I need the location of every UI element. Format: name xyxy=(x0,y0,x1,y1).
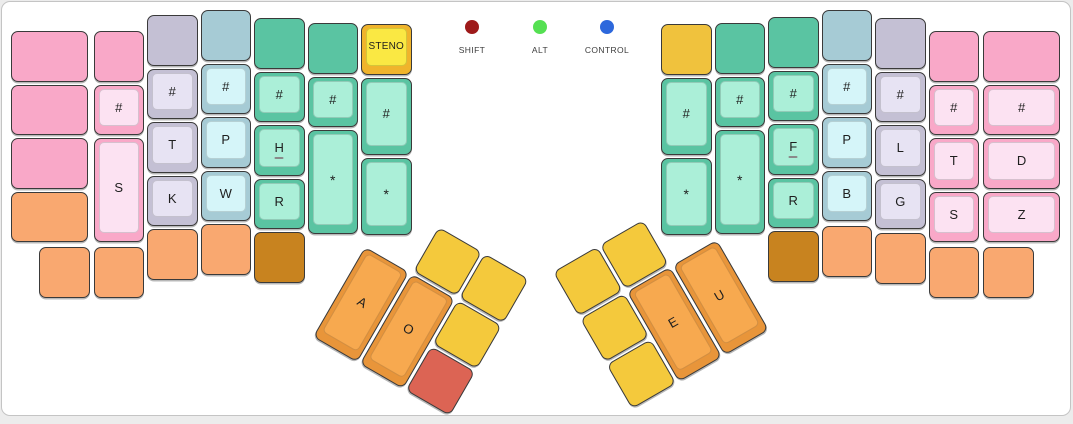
keycap-face: L xyxy=(880,129,921,167)
steno-P-right-key[interactable]: P xyxy=(822,117,873,168)
keycap-face: R xyxy=(259,183,300,221)
key-label: R xyxy=(789,194,798,207)
keycap-face: P xyxy=(827,121,868,159)
steno-number-key[interactable]: # xyxy=(94,85,145,136)
steno-T-right-key[interactable]: T xyxy=(929,138,980,189)
key-label: # xyxy=(329,93,336,106)
key-label: # xyxy=(683,107,690,120)
steno-S-left-key[interactable]: S xyxy=(94,138,145,242)
key-label: # xyxy=(169,85,176,98)
blank-key[interactable] xyxy=(768,17,819,68)
keycap-face: S xyxy=(934,196,975,234)
blank-key[interactable] xyxy=(94,31,145,82)
keycap-face: P xyxy=(206,121,247,159)
keycap-face: * xyxy=(313,134,354,225)
key-label: * xyxy=(737,173,742,187)
keycap-face: G xyxy=(880,183,921,221)
alt-indicator-label: ALT xyxy=(505,45,575,55)
blank-key[interactable] xyxy=(875,18,926,69)
steno-number-key[interactable]: # xyxy=(929,85,980,136)
blank-key[interactable] xyxy=(11,31,88,82)
steno-number-key[interactable]: # xyxy=(822,64,873,115)
blank-key[interactable] xyxy=(11,192,88,243)
blank-key[interactable] xyxy=(11,85,88,136)
keycap-face: # xyxy=(934,89,975,127)
steno-L-key[interactable]: L xyxy=(875,125,926,176)
keycap-face: T xyxy=(934,142,975,180)
key-label: # xyxy=(736,93,743,106)
keyboard-card: #S#TK#PW#HR#*STENO#*#*#*#FR#PB#LG#TS#DZA… xyxy=(1,1,1071,416)
blank-key[interactable] xyxy=(875,233,926,284)
blank-key[interactable] xyxy=(822,226,873,277)
steno-number-key[interactable]: # xyxy=(768,71,819,122)
key-label: # xyxy=(897,88,904,101)
key-label: # xyxy=(222,80,229,93)
key-label: S xyxy=(114,181,123,194)
steno-R-left-key[interactable]: R xyxy=(254,179,305,230)
blank-key[interactable] xyxy=(308,23,359,74)
key-label: U xyxy=(712,287,727,303)
keycap-face: # xyxy=(206,68,247,106)
keycap-face: # xyxy=(827,68,868,106)
key-label: K xyxy=(168,192,177,205)
blank-key[interactable] xyxy=(201,10,252,61)
steno-number-key[interactable]: # xyxy=(715,77,766,128)
shift-indicator: SHIFT xyxy=(437,20,507,55)
blank-key[interactable] xyxy=(929,31,980,82)
key-label: # xyxy=(950,101,957,114)
steno-Z-key[interactable]: Z xyxy=(983,192,1060,243)
keycap-face: * xyxy=(720,134,761,225)
key-label: # xyxy=(790,87,797,100)
key-label: STENO xyxy=(369,42,404,52)
keycap-face: S xyxy=(99,142,140,233)
keycap-face: T xyxy=(152,126,193,164)
steno-number-key[interactable]: # xyxy=(254,72,305,123)
blank-key[interactable] xyxy=(254,232,305,283)
keyboard-layout-stage: #S#TK#PW#HR#*STENO#*#*#*#FR#PB#LG#TS#DZA… xyxy=(0,0,1073,424)
keycap-face: # xyxy=(152,73,193,111)
key-label: * xyxy=(384,187,389,201)
keycap-face: H xyxy=(259,129,300,167)
blank-key[interactable] xyxy=(929,247,980,298)
key-label: G xyxy=(895,195,905,208)
key-label: # xyxy=(276,88,283,101)
alt-indicator: ALT xyxy=(505,20,575,55)
keycap-face: # xyxy=(99,89,140,127)
key-label: T xyxy=(168,138,176,151)
steno-number-key[interactable]: # xyxy=(308,77,359,128)
blank-key[interactable] xyxy=(147,229,198,280)
shift-indicator-dot-icon xyxy=(465,20,479,34)
key-label: P xyxy=(842,133,851,146)
blank-key[interactable] xyxy=(768,231,819,282)
key-label: D xyxy=(1017,154,1026,167)
shift-indicator-label: SHIFT xyxy=(437,45,507,55)
keycap-face: Z xyxy=(988,196,1055,234)
key-label: # xyxy=(843,80,850,93)
key-label: W xyxy=(220,187,232,200)
steno-W-key[interactable]: W xyxy=(201,171,252,222)
keycap-face: # xyxy=(366,82,407,146)
blank-key[interactable] xyxy=(715,23,766,74)
alt-indicator-dot-icon xyxy=(533,20,547,34)
keycap-face: STENO xyxy=(366,28,407,66)
control-indicator: CONTROL xyxy=(572,20,642,55)
keycap-face: B xyxy=(827,175,868,213)
steno-number-key[interactable]: # xyxy=(201,64,252,115)
keycap-face: # xyxy=(988,89,1055,127)
keycap-face: # xyxy=(880,76,921,114)
steno-number-key[interactable]: # xyxy=(661,78,712,155)
key-label: # xyxy=(383,107,390,120)
homing-bar-icon xyxy=(275,157,284,159)
key-label: H xyxy=(275,141,284,154)
key-label: S xyxy=(949,208,958,221)
keycap-face: # xyxy=(313,81,354,119)
keycap-face: R xyxy=(773,182,814,220)
steno-B-key[interactable]: B xyxy=(822,171,873,222)
keycap-face: # xyxy=(259,76,300,114)
steno-P-left-key[interactable]: P xyxy=(201,117,252,168)
blank-key[interactable] xyxy=(94,247,145,298)
key-label: L xyxy=(897,141,904,154)
key-label: F xyxy=(789,140,797,153)
key-label: # xyxy=(1018,101,1025,114)
blank-key[interactable] xyxy=(983,31,1060,82)
blank-key[interactable] xyxy=(147,15,198,66)
control-indicator-dot-icon xyxy=(600,20,614,34)
steno-number-key[interactable]: # xyxy=(361,78,412,155)
keycap-face: K xyxy=(152,180,193,218)
keycap-face: D xyxy=(988,142,1055,180)
steno-number-key[interactable]: # xyxy=(983,85,1060,136)
steno-number-key[interactable]: # xyxy=(147,69,198,120)
key-label: A xyxy=(355,294,369,310)
steno-F-key[interactable]: F xyxy=(768,124,819,175)
key-label: O xyxy=(401,320,416,336)
homing-bar-icon xyxy=(789,156,798,158)
steno-D-key[interactable]: D xyxy=(983,138,1060,189)
key-label: # xyxy=(115,101,122,114)
steno-R-right-key[interactable]: R xyxy=(768,178,819,229)
keycap-face: # xyxy=(773,75,814,113)
keycap-face: W xyxy=(206,175,247,213)
blank-key[interactable] xyxy=(39,247,90,298)
key-label: R xyxy=(275,195,284,208)
keycap-face: # xyxy=(720,81,761,119)
steno-layer-key[interactable]: STENO xyxy=(361,24,412,75)
blank-key[interactable] xyxy=(822,10,873,61)
steno-K-key[interactable]: K xyxy=(147,176,198,227)
key-label: E xyxy=(666,314,680,330)
keycap-face: F xyxy=(773,128,814,166)
steno-H-key[interactable]: H xyxy=(254,125,305,176)
key-label: P xyxy=(221,133,230,146)
steno-T-left-key[interactable]: T xyxy=(147,122,198,173)
steno-star-key[interactable]: * xyxy=(715,130,766,234)
steno-S-right-key[interactable]: S xyxy=(929,192,980,243)
blank-key[interactable] xyxy=(11,138,88,189)
blank-key-gold[interactable] xyxy=(661,24,712,75)
key-label: Z xyxy=(1018,208,1026,221)
steno-star-key[interactable]: * xyxy=(308,130,359,234)
key-label: * xyxy=(330,173,335,187)
keyboard-board: #S#TK#PW#HR#*STENO#*#*#*#FR#PB#LG#TS#DZA… xyxy=(2,2,1070,415)
key-label: B xyxy=(842,187,851,200)
keycap-face: # xyxy=(666,82,707,146)
steno-G-key[interactable]: G xyxy=(875,179,926,230)
blank-key[interactable] xyxy=(254,18,305,69)
control-indicator-label: CONTROL xyxy=(572,45,642,55)
blank-key[interactable] xyxy=(983,247,1034,298)
steno-number-key[interactable]: # xyxy=(875,72,926,123)
key-label: T xyxy=(950,154,958,167)
blank-key[interactable] xyxy=(201,224,252,275)
